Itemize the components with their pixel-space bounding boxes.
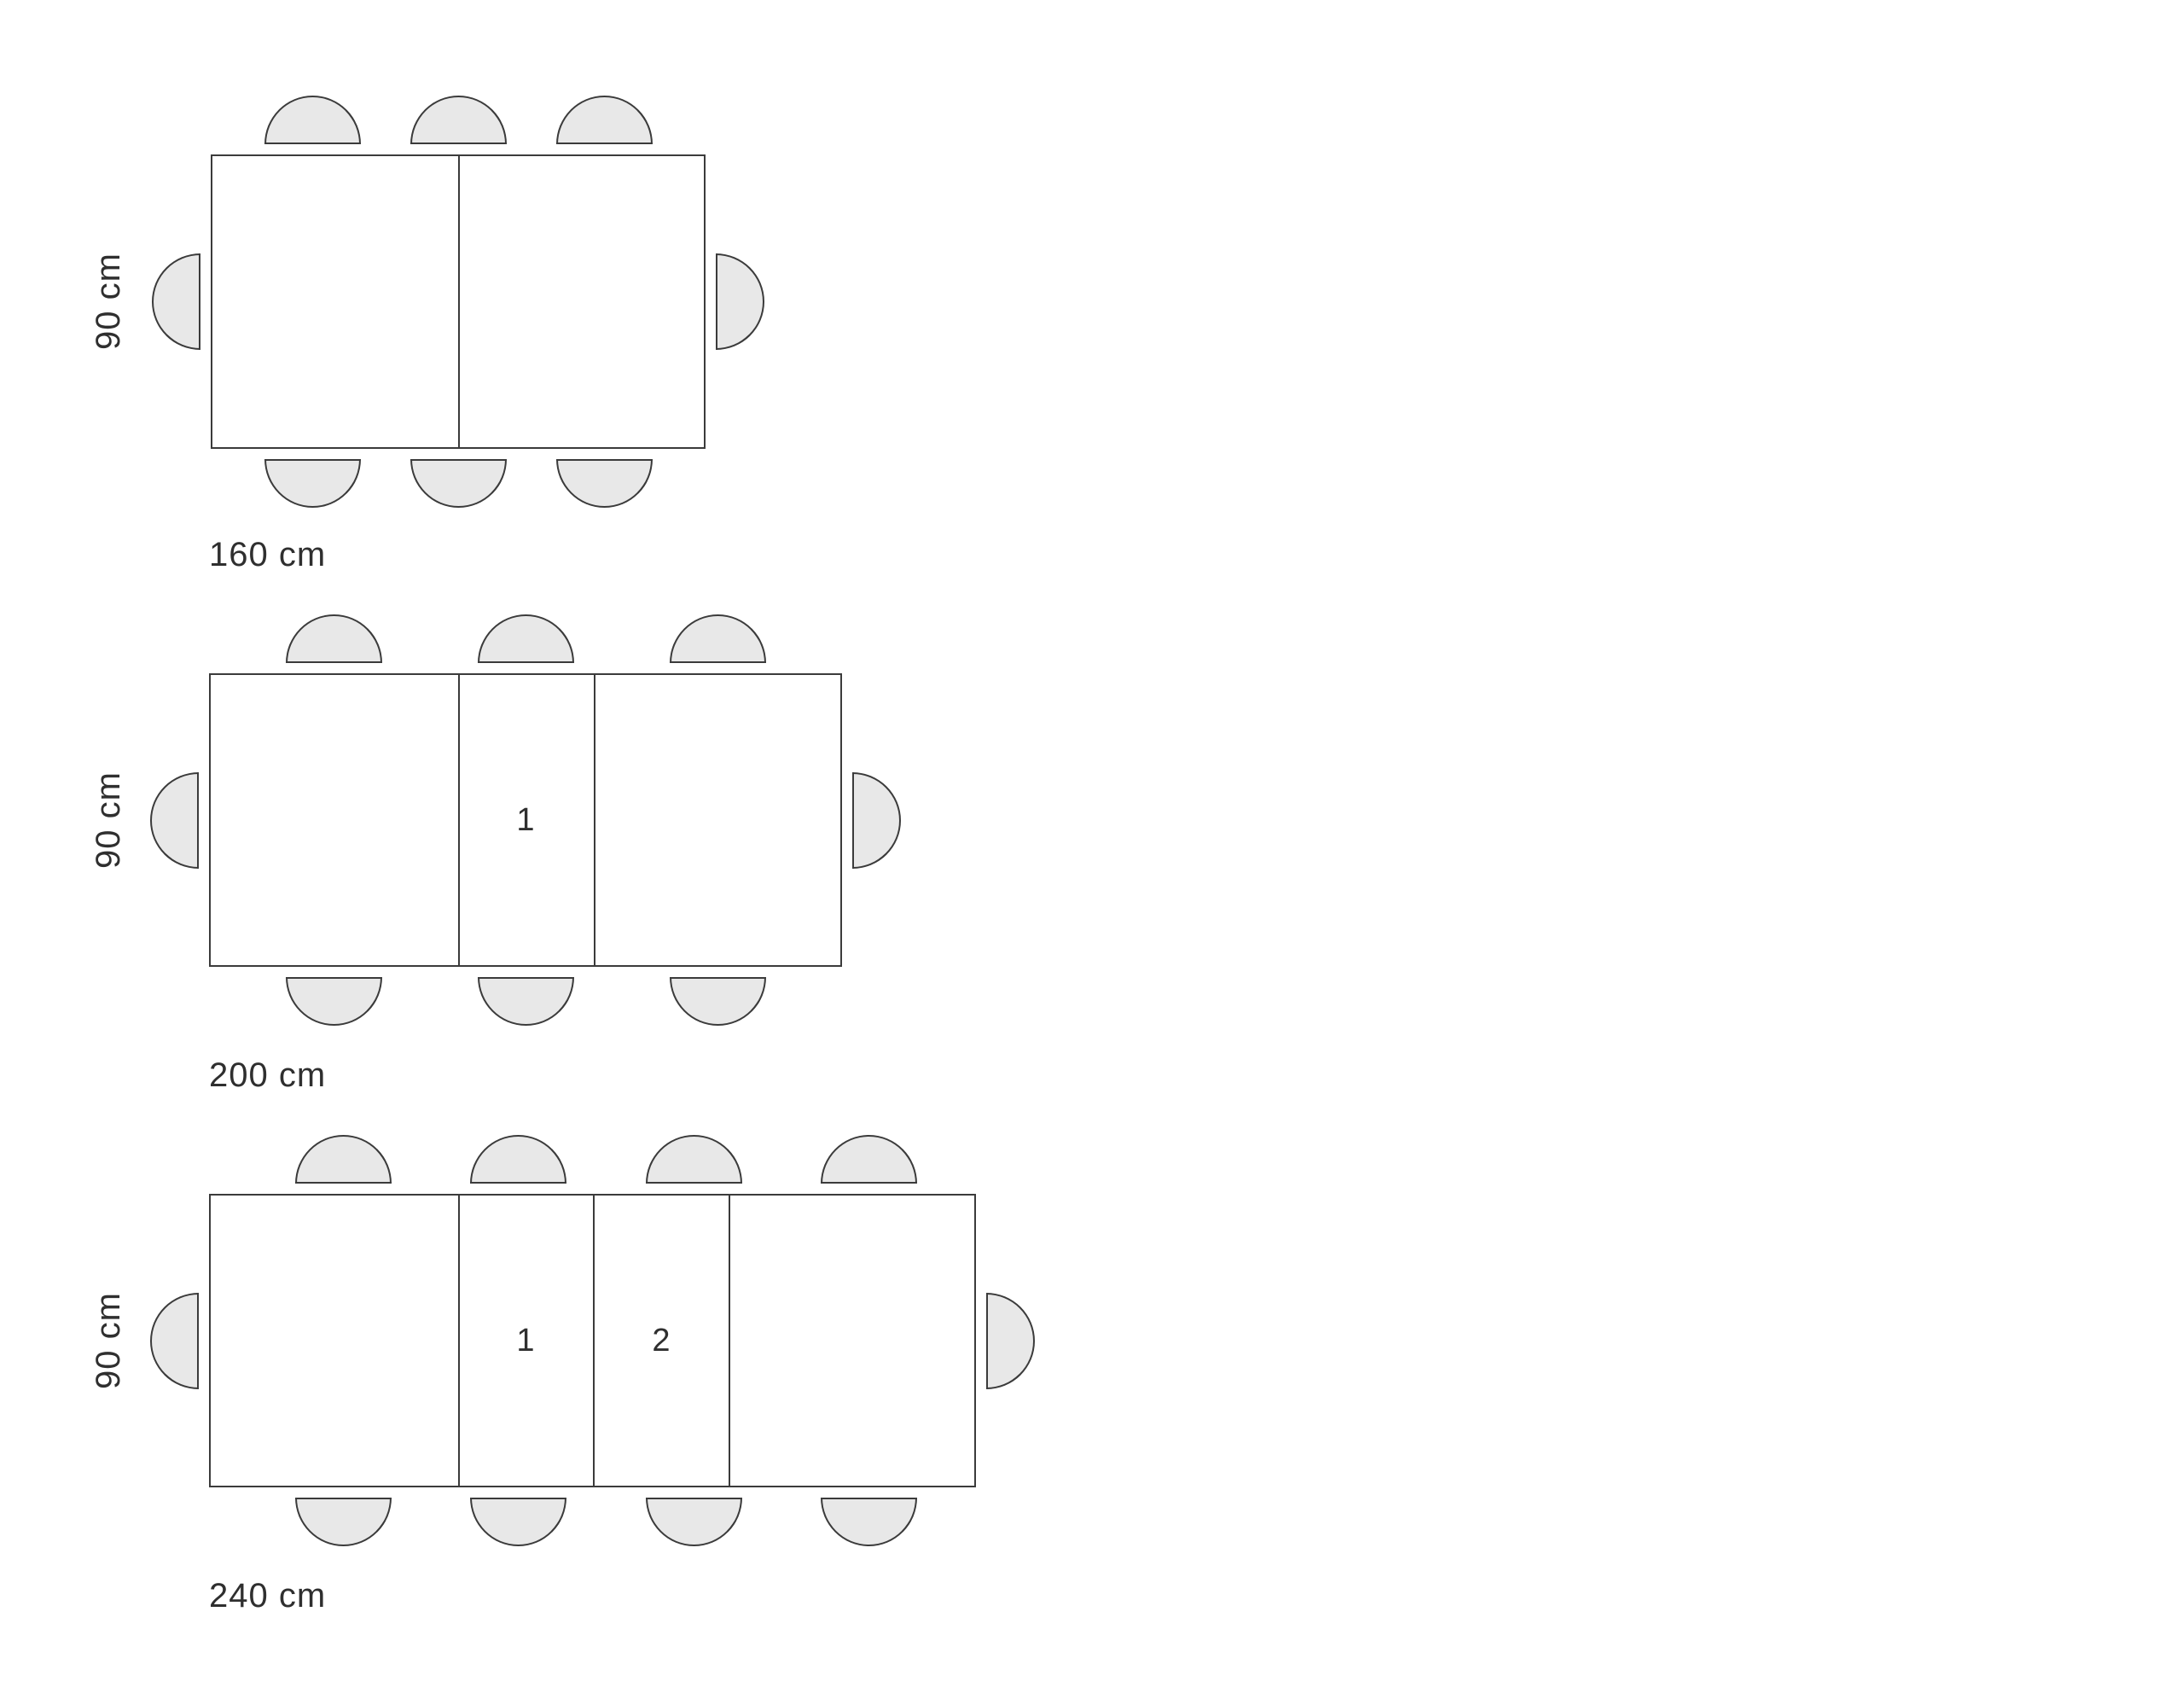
chair-right bbox=[986, 1293, 1035, 1389]
width-dimension-label: 240 cm bbox=[209, 1579, 326, 1613]
chair-bottom-3 bbox=[646, 1498, 742, 1546]
height-dimension-label: 90 cm bbox=[91, 1292, 125, 1389]
leaf-number-label: 1 bbox=[516, 1324, 534, 1357]
diagram-table-240: 12240 cm90 cm bbox=[0, 0, 2184, 1699]
leaf-number-label: 2 bbox=[652, 1324, 670, 1357]
chair-top-4 bbox=[821, 1135, 917, 1184]
floorplan-canvas: 160 cm90 cm1200 cm90 cm12240 cm90 cm bbox=[0, 0, 2184, 1699]
chair-left bbox=[150, 1293, 199, 1389]
extension-leaf-divider bbox=[458, 1196, 460, 1486]
chair-top-1 bbox=[295, 1135, 392, 1184]
chair-bottom-2 bbox=[470, 1498, 566, 1546]
chair-bottom-4 bbox=[821, 1498, 917, 1546]
chair-top-3 bbox=[646, 1135, 742, 1184]
extension-leaf-divider bbox=[593, 1196, 595, 1486]
extension-leaf-divider bbox=[729, 1196, 730, 1486]
chair-bottom-1 bbox=[295, 1498, 392, 1546]
chair-top-2 bbox=[470, 1135, 566, 1184]
